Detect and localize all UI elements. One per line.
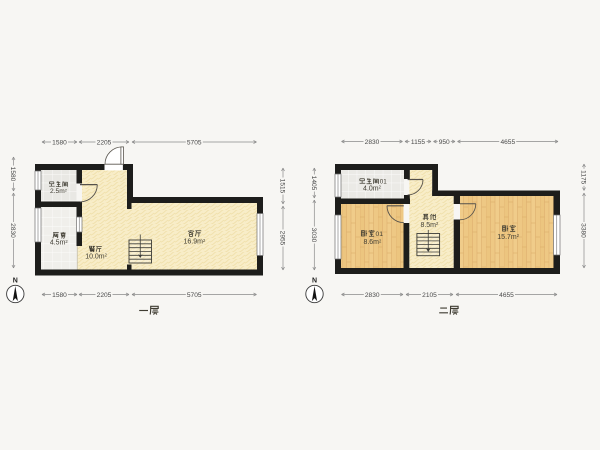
svg-text:1175: 1175	[580, 170, 587, 185]
svg-text:N: N	[13, 278, 18, 285]
svg-text:5705: 5705	[187, 292, 202, 299]
svg-text:1580: 1580	[52, 292, 67, 299]
svg-text:2955: 2955	[279, 231, 286, 246]
svg-text:2105: 2105	[422, 292, 437, 299]
svg-text:1580: 1580	[52, 139, 67, 146]
svg-text:2830: 2830	[365, 292, 380, 299]
svg-text:5705: 5705	[187, 139, 202, 146]
svg-text:2205: 2205	[97, 292, 112, 299]
svg-text:10.0m2: 10.0m2	[85, 253, 107, 261]
svg-text:15.7m2: 15.7m2	[497, 233, 519, 241]
svg-text:2205: 2205	[97, 139, 112, 146]
svg-text:N: N	[312, 278, 317, 285]
svg-text:1405: 1405	[310, 176, 317, 191]
svg-text:01: 01	[376, 231, 384, 238]
svg-text:3030: 3030	[310, 228, 317, 243]
svg-text:3380: 3380	[580, 223, 587, 238]
svg-text:950: 950	[439, 139, 450, 146]
svg-text:16.9m2: 16.9m2	[183, 238, 205, 246]
svg-text:2830: 2830	[365, 139, 380, 146]
svg-text:4655: 4655	[500, 139, 515, 146]
svg-text:4655: 4655	[499, 292, 514, 299]
svg-text:1515: 1515	[279, 179, 286, 194]
svg-text:2830: 2830	[9, 223, 16, 238]
svg-text:1155: 1155	[411, 139, 426, 146]
svg-text:1580: 1580	[9, 167, 16, 182]
